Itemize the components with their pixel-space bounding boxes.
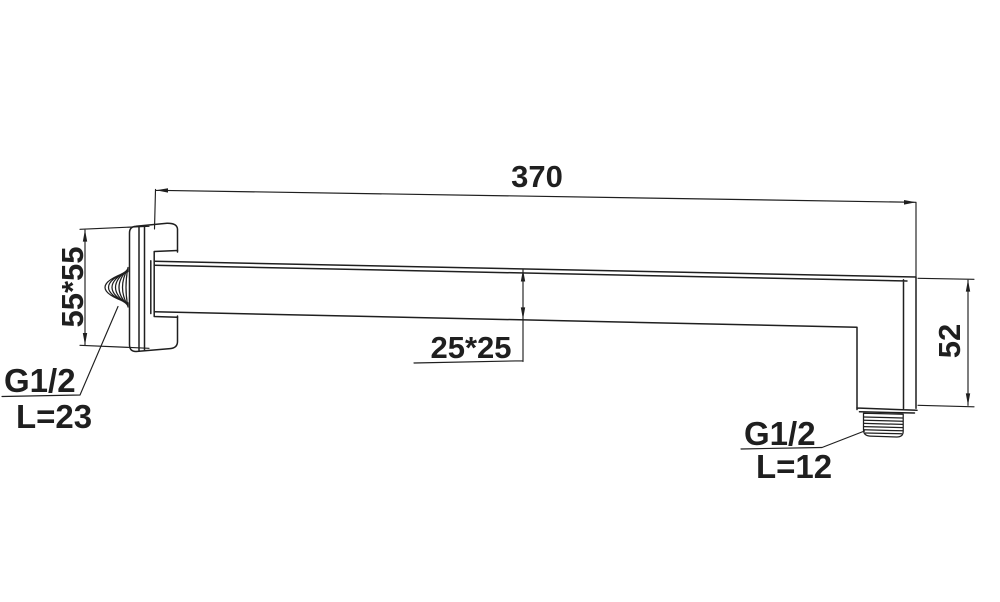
dim-arm-length-label: 370 <box>511 159 563 194</box>
arm-tube-outline <box>154 261 917 413</box>
wall-thread-length-label: L=23 <box>16 398 92 435</box>
dim-flange-size-label: 55*55 <box>55 246 90 327</box>
wall-thread-spec-label: G1/2 <box>4 362 76 399</box>
shower-arm-technical-drawing: 370 55*55 25*25 52 G1/2 L=23 G1/2 L=12 <box>0 0 1000 602</box>
outlet-thread-spec-label: G1/2 <box>744 415 816 452</box>
wall-thread <box>105 268 128 308</box>
dimension-labels: 370 55*55 25*25 52 G1/2 L=23 G1/2 L=12 <box>4 159 967 485</box>
drawing-canvas: 370 55*55 25*25 52 G1/2 L=23 G1/2 L=12 <box>0 0 1000 602</box>
arm-base-joint <box>151 251 178 318</box>
outlet-thread <box>864 413 904 437</box>
dim-outlet-drop-label: 52 <box>932 324 967 358</box>
dimension-arrowheads <box>83 188 970 405</box>
dim-arm-section-label: 25*25 <box>430 330 511 365</box>
outlet-thread-length-label: L=12 <box>756 448 832 485</box>
